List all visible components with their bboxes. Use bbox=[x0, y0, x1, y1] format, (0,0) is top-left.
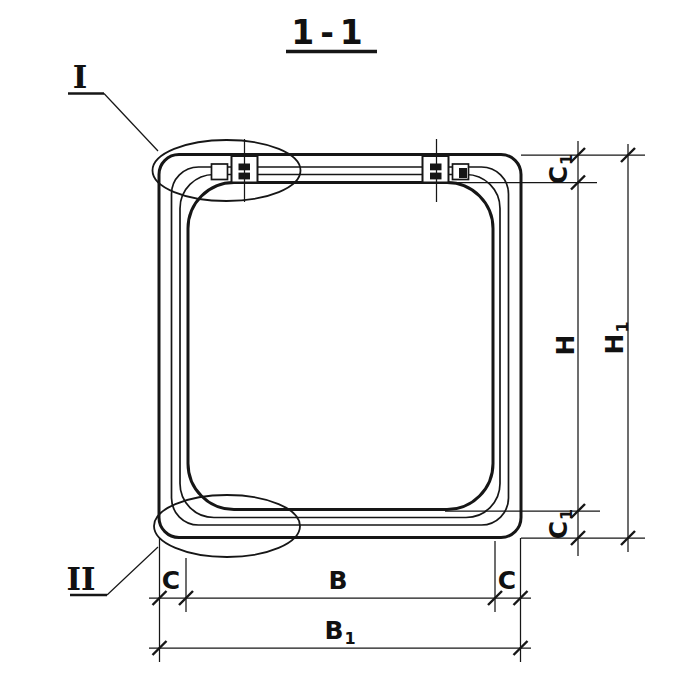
insert-right-anchor-hatch bbox=[430, 173, 442, 180]
section-body bbox=[159, 155, 521, 538]
detail-marker-I-label: I bbox=[73, 59, 88, 95]
detail-circle-II bbox=[154, 495, 300, 557]
dim-label-c1-top-base: C bbox=[544, 166, 573, 184]
dimension-ticks bbox=[153, 148, 636, 655]
embedded-insert-left bbox=[212, 139, 258, 202]
dim-label-c1-bottom: C1 bbox=[544, 509, 576, 540]
wall-contour-3 bbox=[180, 175, 500, 518]
inner-opening-contour bbox=[188, 183, 493, 510]
dim-label-h-base: H bbox=[551, 335, 580, 356]
dim-label-b-base: B bbox=[328, 566, 347, 595]
dim-label-b1-base: B bbox=[324, 616, 343, 645]
dim-label-c1-top: C1 bbox=[544, 154, 576, 185]
insert-left-side-plate bbox=[212, 164, 228, 180]
dimension-lines bbox=[149, 141, 628, 648]
dim-label-h1: H1 bbox=[600, 321, 632, 354]
marker-I-leader-line bbox=[104, 94, 158, 152]
insert-right-anchor-hatch bbox=[430, 164, 442, 171]
dim-label-c-left-base: C bbox=[162, 566, 180, 595]
section-drawing: 1-1 I II C1 H C1 H1 C B C B1 bbox=[0, 0, 700, 700]
extension-lines bbox=[160, 155, 646, 662]
dim-label-c-right: C bbox=[498, 566, 516, 595]
dim-label-c1-bottom-base: C bbox=[544, 521, 573, 539]
dim-label-c-left: C bbox=[162, 566, 180, 595]
dim-label-h: H bbox=[551, 335, 580, 356]
marker-II-leader-line bbox=[107, 547, 158, 595]
detail-leader-I bbox=[68, 94, 158, 152]
detail-marker-II-label: II bbox=[66, 561, 95, 597]
outer-contour bbox=[159, 155, 521, 538]
dim-label-b1: B1 bbox=[324, 616, 355, 648]
dim-label-h1-sub: 1 bbox=[613, 321, 632, 332]
dim-label-c1-top-sub: 1 bbox=[557, 154, 576, 165]
drawing-sheet: 1-1 I II C1 H C1 H1 C B C B1 bbox=[0, 0, 700, 700]
section-title: 1-1 bbox=[291, 13, 369, 52]
insert-right-anchor-mark bbox=[459, 168, 467, 178]
dim-label-c1-bottom-sub: 1 bbox=[557, 509, 576, 520]
dim-label-b: B bbox=[328, 566, 347, 595]
dim-label-c-right-base: C bbox=[498, 566, 516, 595]
dim-label-h1-base: H bbox=[600, 334, 629, 355]
wall-contour-2 bbox=[172, 167, 509, 525]
embedded-insert-right bbox=[423, 139, 469, 202]
dim-label-b1-sub: 1 bbox=[344, 629, 355, 648]
